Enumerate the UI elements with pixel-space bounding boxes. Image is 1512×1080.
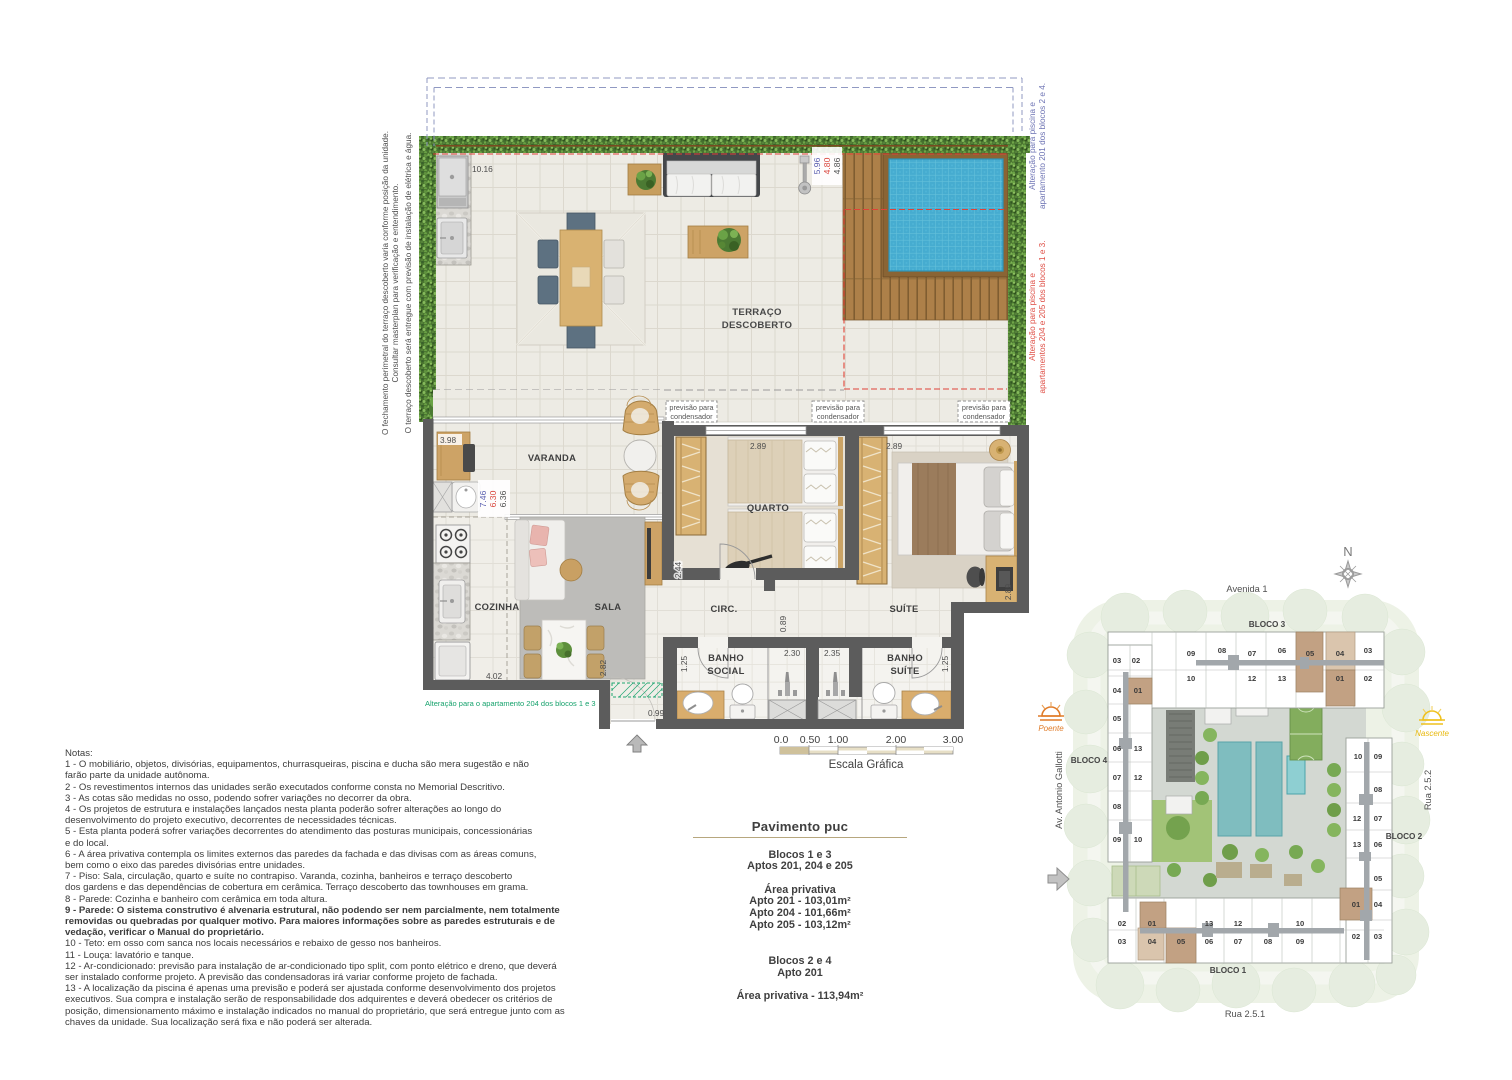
svg-text:04: 04 (1374, 900, 1383, 909)
svg-text:04: 04 (1148, 937, 1157, 946)
svg-text:Avenida 1: Avenida 1 (1226, 584, 1267, 594)
svg-text:02: 02 (1352, 932, 1360, 941)
svg-text:previsão para: previsão para (816, 403, 861, 412)
svg-text:04: 04 (1113, 686, 1122, 695)
svg-text:02: 02 (1118, 919, 1126, 928)
svg-text:04: 04 (1336, 649, 1345, 658)
svg-text:6.36: 6.36 (498, 490, 508, 507)
svg-text:13: 13 (1278, 674, 1286, 683)
svg-text:Av. Antonio Gallotti: Av. Antonio Gallotti (1054, 751, 1064, 829)
svg-text:BANHO: BANHO (887, 652, 923, 663)
svg-text:condensador: condensador (817, 412, 860, 421)
svg-text:06: 06 (1205, 937, 1213, 946)
svg-text:1.25: 1.25 (679, 656, 689, 673)
svg-text:2.89: 2.89 (750, 441, 767, 451)
svg-text:0.99: 0.99 (648, 708, 665, 718)
svg-text:apartamento 201 dos blocos 2 e: apartamento 201 dos blocos 2 e 4. (1038, 83, 1047, 209)
svg-text:BLOCO 2: BLOCO 2 (1386, 832, 1423, 841)
svg-text:1.25: 1.25 (940, 656, 950, 673)
svg-text:10: 10 (1134, 835, 1142, 844)
svg-text:03: 03 (1113, 656, 1121, 665)
svg-text:13: 13 (1353, 840, 1361, 849)
svg-text:08: 08 (1113, 802, 1121, 811)
svg-text:05: 05 (1306, 649, 1315, 658)
svg-text:SOCIAL: SOCIAL (707, 665, 744, 676)
svg-text:07: 07 (1113, 773, 1121, 782)
svg-text:SUÍTE: SUÍTE (889, 603, 918, 614)
svg-text:3.98: 3.98 (440, 435, 457, 445)
svg-text:12: 12 (1234, 919, 1242, 928)
svg-text:01: 01 (1352, 900, 1361, 909)
svg-text:10: 10 (1296, 919, 1304, 928)
svg-text:condensador: condensador (963, 412, 1006, 421)
svg-text:09: 09 (1374, 752, 1382, 761)
svg-text:13: 13 (1205, 919, 1213, 928)
svg-text:N: N (1343, 544, 1352, 559)
svg-text:BANHO: BANHO (708, 652, 744, 663)
svg-text:08: 08 (1218, 646, 1226, 655)
svg-text:02: 02 (1132, 656, 1140, 665)
svg-text:12: 12 (1248, 674, 1256, 683)
svg-text:03: 03 (1374, 932, 1382, 941)
svg-text:previsão para: previsão para (962, 403, 1007, 412)
svg-text:1.00: 1.00 (828, 734, 849, 746)
svg-text:01: 01 (1336, 674, 1345, 683)
svg-text:07: 07 (1234, 937, 1242, 946)
svg-text:apartamentos 204 e 205 dos blo: apartamentos 204 e 205 dos blocos 1 e 3. (1038, 241, 1047, 394)
svg-text:08: 08 (1374, 785, 1382, 794)
svg-text:O fechamento perimetral do ter: O fechamento perimetral do terraço desco… (381, 131, 390, 435)
svg-text:13: 13 (1134, 744, 1142, 753)
svg-text:CIRC.: CIRC. (710, 603, 737, 614)
svg-text:QUARTO: QUARTO (747, 502, 789, 513)
svg-text:09: 09 (1113, 835, 1121, 844)
svg-text:4.80: 4.80 (822, 157, 832, 174)
svg-text:07: 07 (1248, 649, 1256, 658)
svg-text:03: 03 (1364, 646, 1372, 655)
svg-text:2.89: 2.89 (1003, 584, 1013, 601)
svg-text:06: 06 (1374, 840, 1382, 849)
svg-text:7.46: 7.46 (478, 490, 488, 507)
svg-text:2.82: 2.82 (598, 660, 608, 677)
svg-text:0.89: 0.89 (778, 616, 788, 633)
svg-text:condensador: condensador (670, 412, 713, 421)
svg-text:05: 05 (1374, 874, 1383, 883)
svg-text:Rua 2.5.2: Rua 2.5.2 (1423, 770, 1433, 810)
svg-text:06: 06 (1278, 646, 1286, 655)
svg-text:DESCOBERTO: DESCOBERTO (722, 320, 793, 331)
svg-text:Alteração para piscina e: Alteração para piscina e (1028, 102, 1037, 190)
svg-text:09: 09 (1296, 937, 1304, 946)
svg-text:Consultar masterplan para veri: Consultar masterplan para verificação e … (391, 184, 400, 383)
svg-text:SUÍTE: SUÍTE (890, 665, 919, 676)
svg-text:10.16: 10.16 (472, 164, 493, 174)
svg-text:COZINHA: COZINHA (475, 601, 520, 612)
svg-text:Nascente: Nascente (1415, 729, 1449, 738)
svg-text:O terraço descoberto será entr: O terraço descoberto será entregue com p… (404, 133, 413, 434)
svg-text:4.02: 4.02 (486, 671, 503, 681)
svg-text:12: 12 (1353, 814, 1361, 823)
svg-text:03: 03 (1118, 937, 1126, 946)
svg-text:02: 02 (1364, 674, 1372, 683)
svg-text:Poente: Poente (1038, 724, 1064, 733)
svg-text:06: 06 (1113, 744, 1121, 753)
svg-text:5.96: 5.96 (812, 157, 822, 174)
svg-text:BLOCO 1: BLOCO 1 (1210, 966, 1247, 975)
svg-text:2.35: 2.35 (824, 648, 841, 658)
svg-text:Rua 2.5.1: Rua 2.5.1 (1225, 1009, 1265, 1019)
svg-text:4.86: 4.86 (832, 157, 842, 174)
svg-text:08: 08 (1264, 937, 1272, 946)
svg-text:VARANDA: VARANDA (528, 452, 576, 463)
svg-text:10: 10 (1187, 674, 1195, 683)
svg-text:09: 09 (1187, 649, 1195, 658)
svg-text:2.89: 2.89 (886, 441, 903, 451)
svg-text:2.00: 2.00 (886, 734, 907, 746)
svg-text:10: 10 (1354, 752, 1362, 761)
svg-text:01: 01 (1148, 919, 1157, 928)
svg-text:Alteração para o apartamento 2: Alteração para o apartamento 204 dos blo… (425, 699, 596, 708)
svg-text:Escala Gráfica: Escala Gráfica (829, 759, 904, 771)
svg-text:TERRAÇO: TERRAÇO (732, 307, 782, 318)
svg-text:previsão para: previsão para (669, 403, 714, 412)
svg-text:BLOCO 3: BLOCO 3 (1249, 620, 1286, 629)
svg-text:2.44: 2.44 (673, 562, 683, 579)
svg-text:BLOCO 4: BLOCO 4 (1071, 756, 1108, 765)
svg-text:Alteração para piscina e: Alteração para piscina e (1028, 273, 1037, 361)
svg-text:05: 05 (1177, 937, 1186, 946)
svg-text:07: 07 (1374, 814, 1382, 823)
svg-text:01: 01 (1134, 686, 1143, 695)
svg-text:6.30: 6.30 (488, 490, 498, 507)
svg-text:SALA: SALA (595, 601, 622, 612)
svg-text:05: 05 (1113, 714, 1122, 723)
svg-text:3.00: 3.00 (943, 734, 964, 746)
svg-text:0.50: 0.50 (800, 734, 821, 746)
svg-text:12: 12 (1134, 773, 1142, 782)
svg-text:2.30: 2.30 (784, 648, 801, 658)
svg-text:0.0: 0.0 (774, 734, 789, 746)
